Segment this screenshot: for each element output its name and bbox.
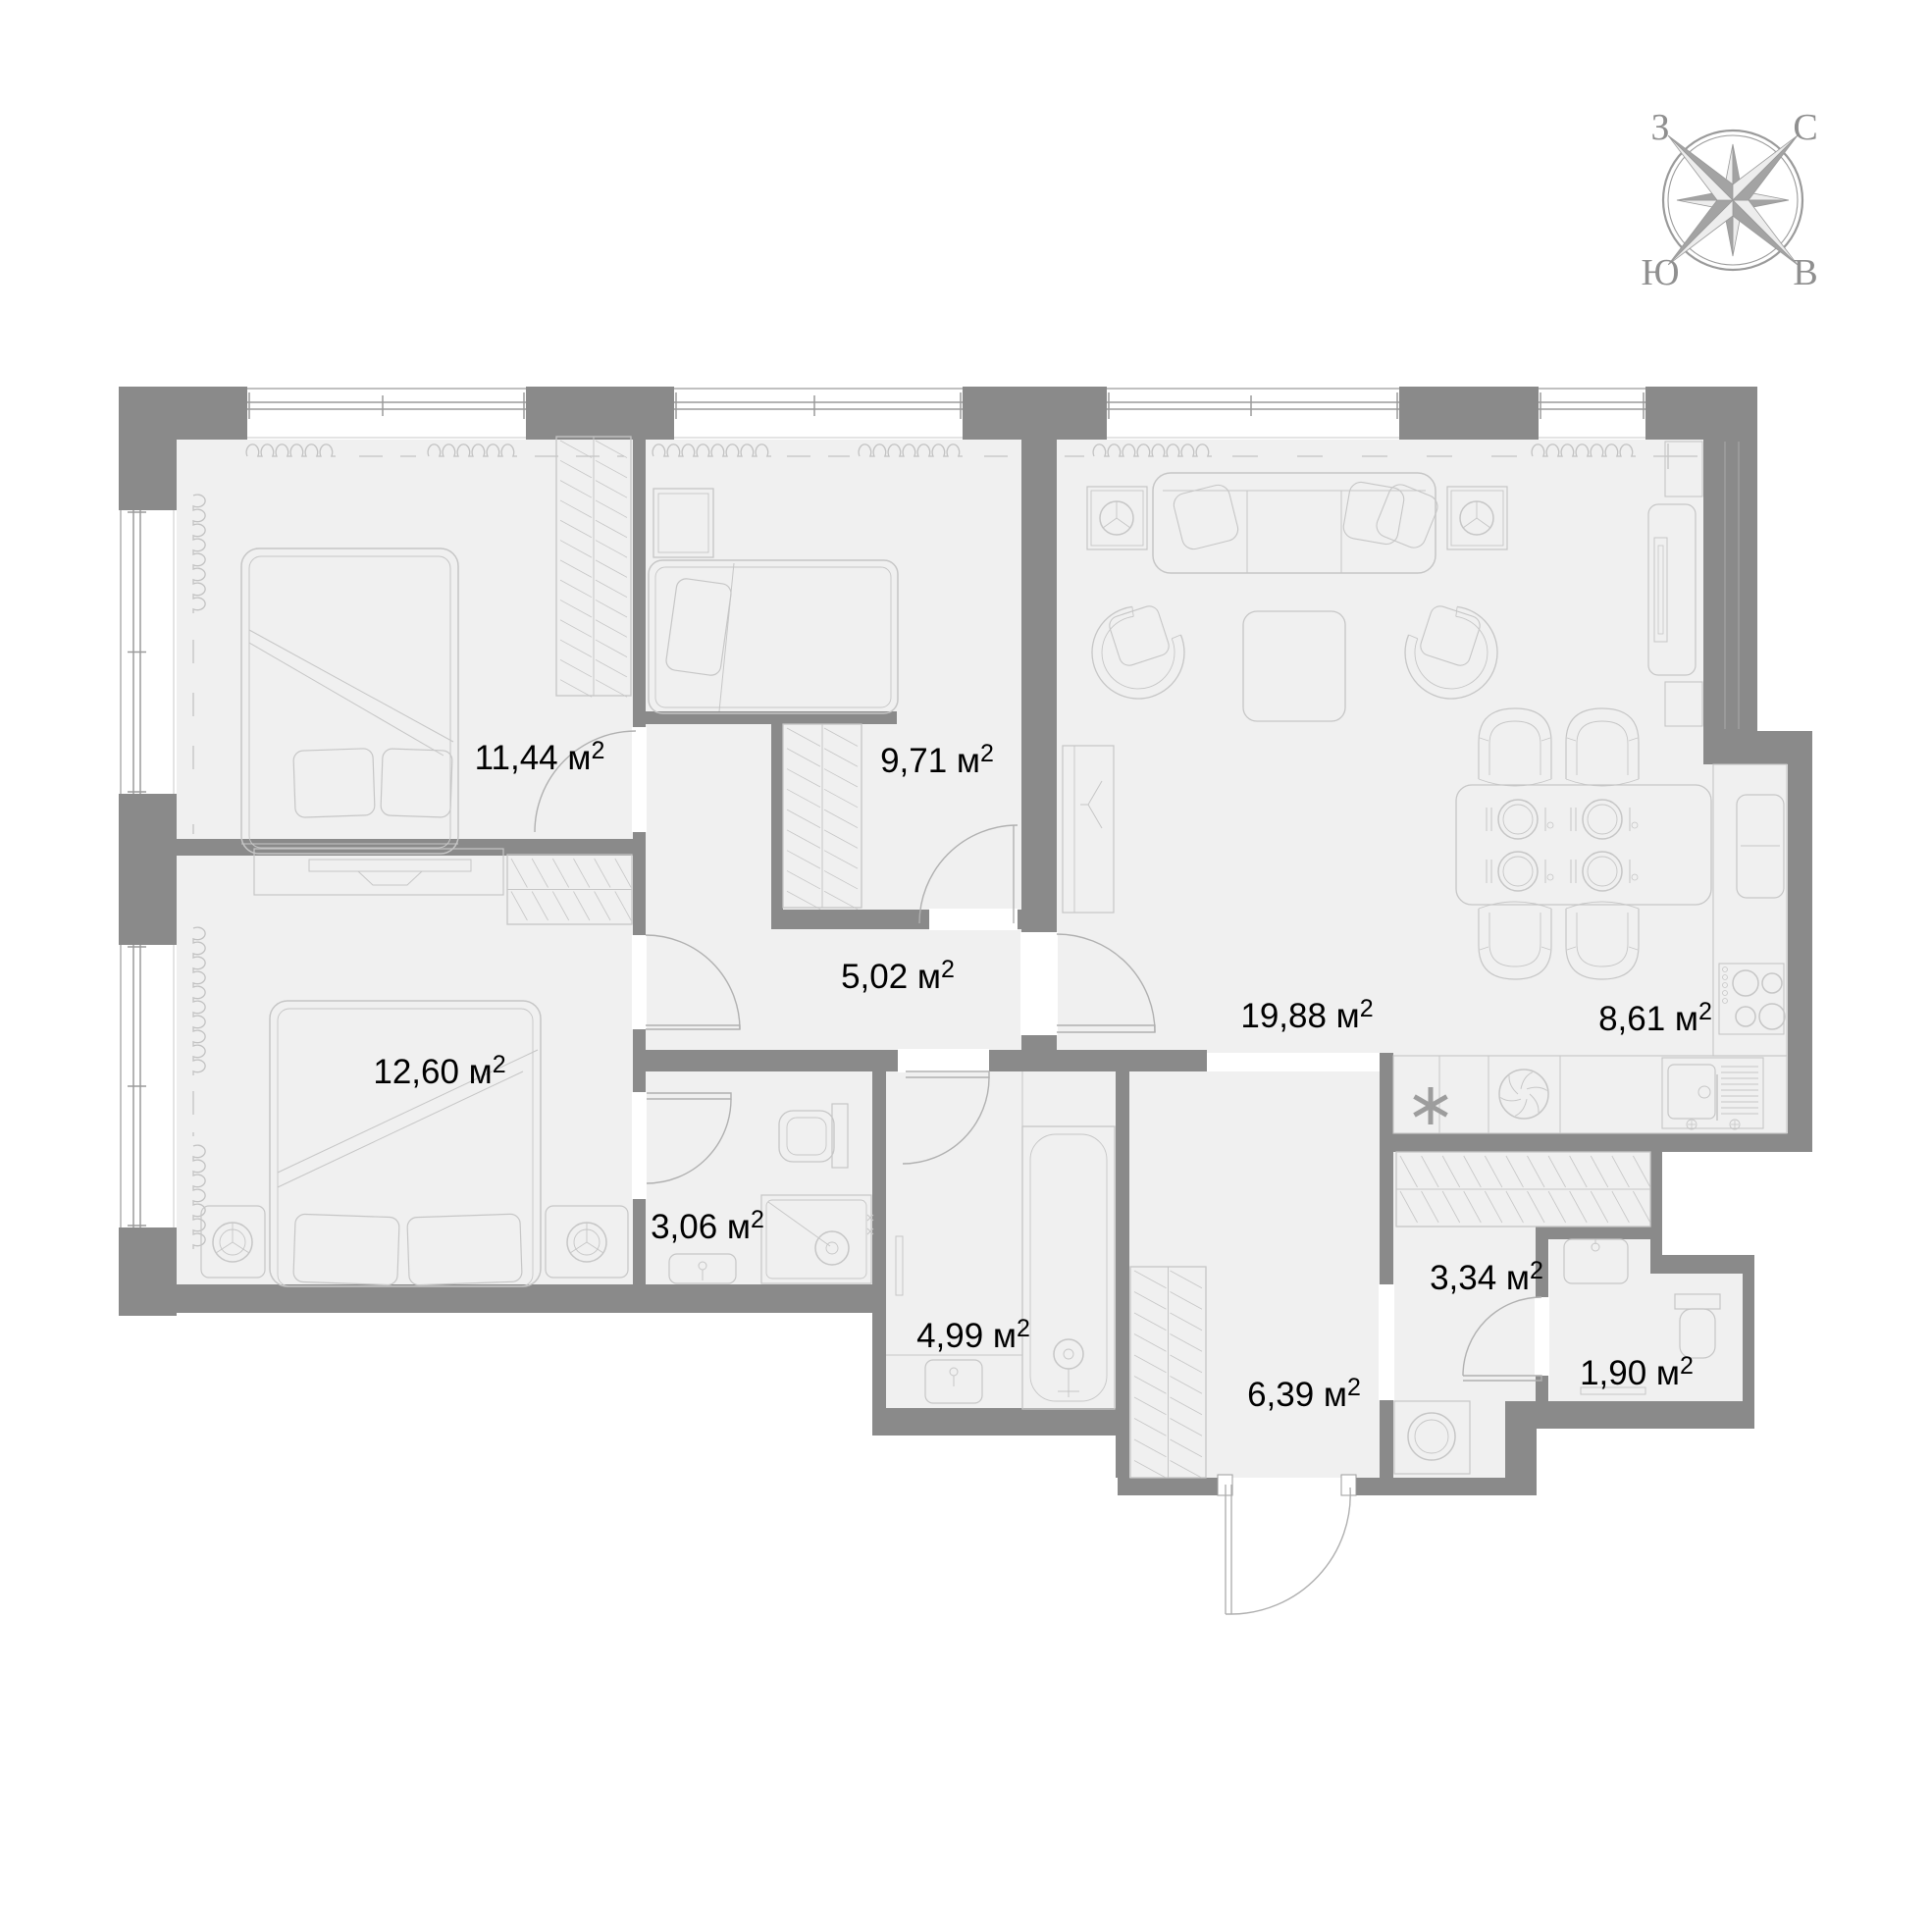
svg-text:9,71 м2: 9,71 м2 [880,740,994,780]
svg-text:6,39 м2: 6,39 м2 [1247,1374,1361,1414]
svg-text:12,60 м2: 12,60 м2 [373,1051,505,1091]
svg-text:1,90 м2: 1,90 м2 [1580,1352,1694,1392]
svg-text:С: С [1793,107,1817,148]
svg-text:3,34 м2: 3,34 м2 [1430,1257,1543,1297]
svg-text:11,44 м2: 11,44 м2 [475,737,605,777]
svg-text:В: В [1793,252,1817,293]
svg-text:19,88 м2: 19,88 м2 [1240,995,1373,1035]
svg-text:4,99 м2: 4,99 м2 [916,1315,1030,1355]
svg-text:Ю: Ю [1641,252,1679,293]
svg-text:3,06 м2: 3,06 м2 [651,1206,764,1246]
svg-text:8,61 м2: 8,61 м2 [1598,998,1712,1038]
svg-text:З: З [1650,107,1669,148]
svg-text:5,02 м2: 5,02 м2 [841,956,955,996]
